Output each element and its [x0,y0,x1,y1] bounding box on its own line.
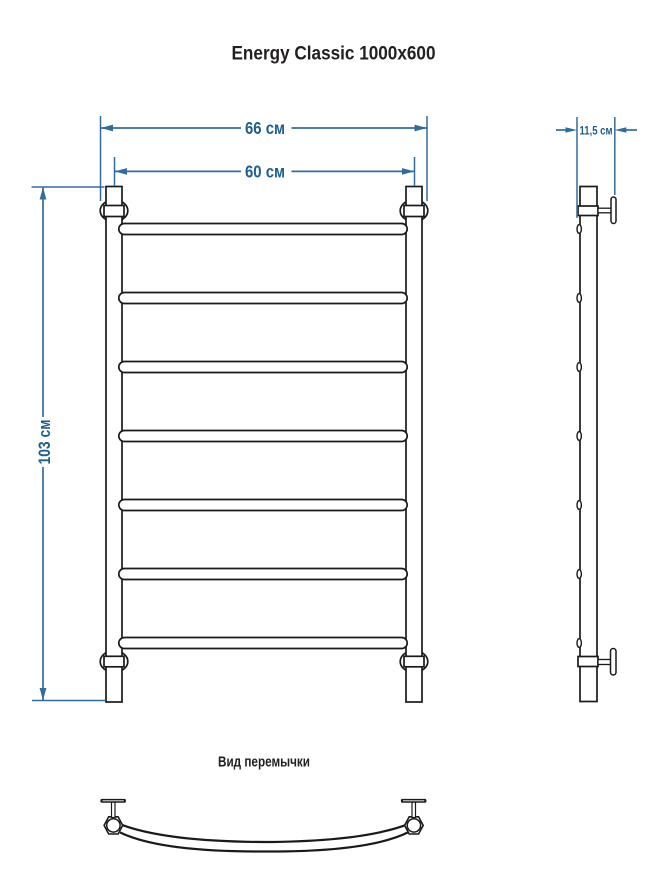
svg-text:Вид перемычки: Вид перемычки [218,754,310,771]
svg-text:Energy Classic 1000x600: Energy Classic 1000x600 [232,43,436,65]
svg-text:60 см: 60 см [245,162,285,182]
svg-text:103 см: 103 см [35,420,54,465]
svg-text:11,5 см: 11,5 см [580,125,613,137]
svg-text:66 см: 66 см [245,118,285,138]
